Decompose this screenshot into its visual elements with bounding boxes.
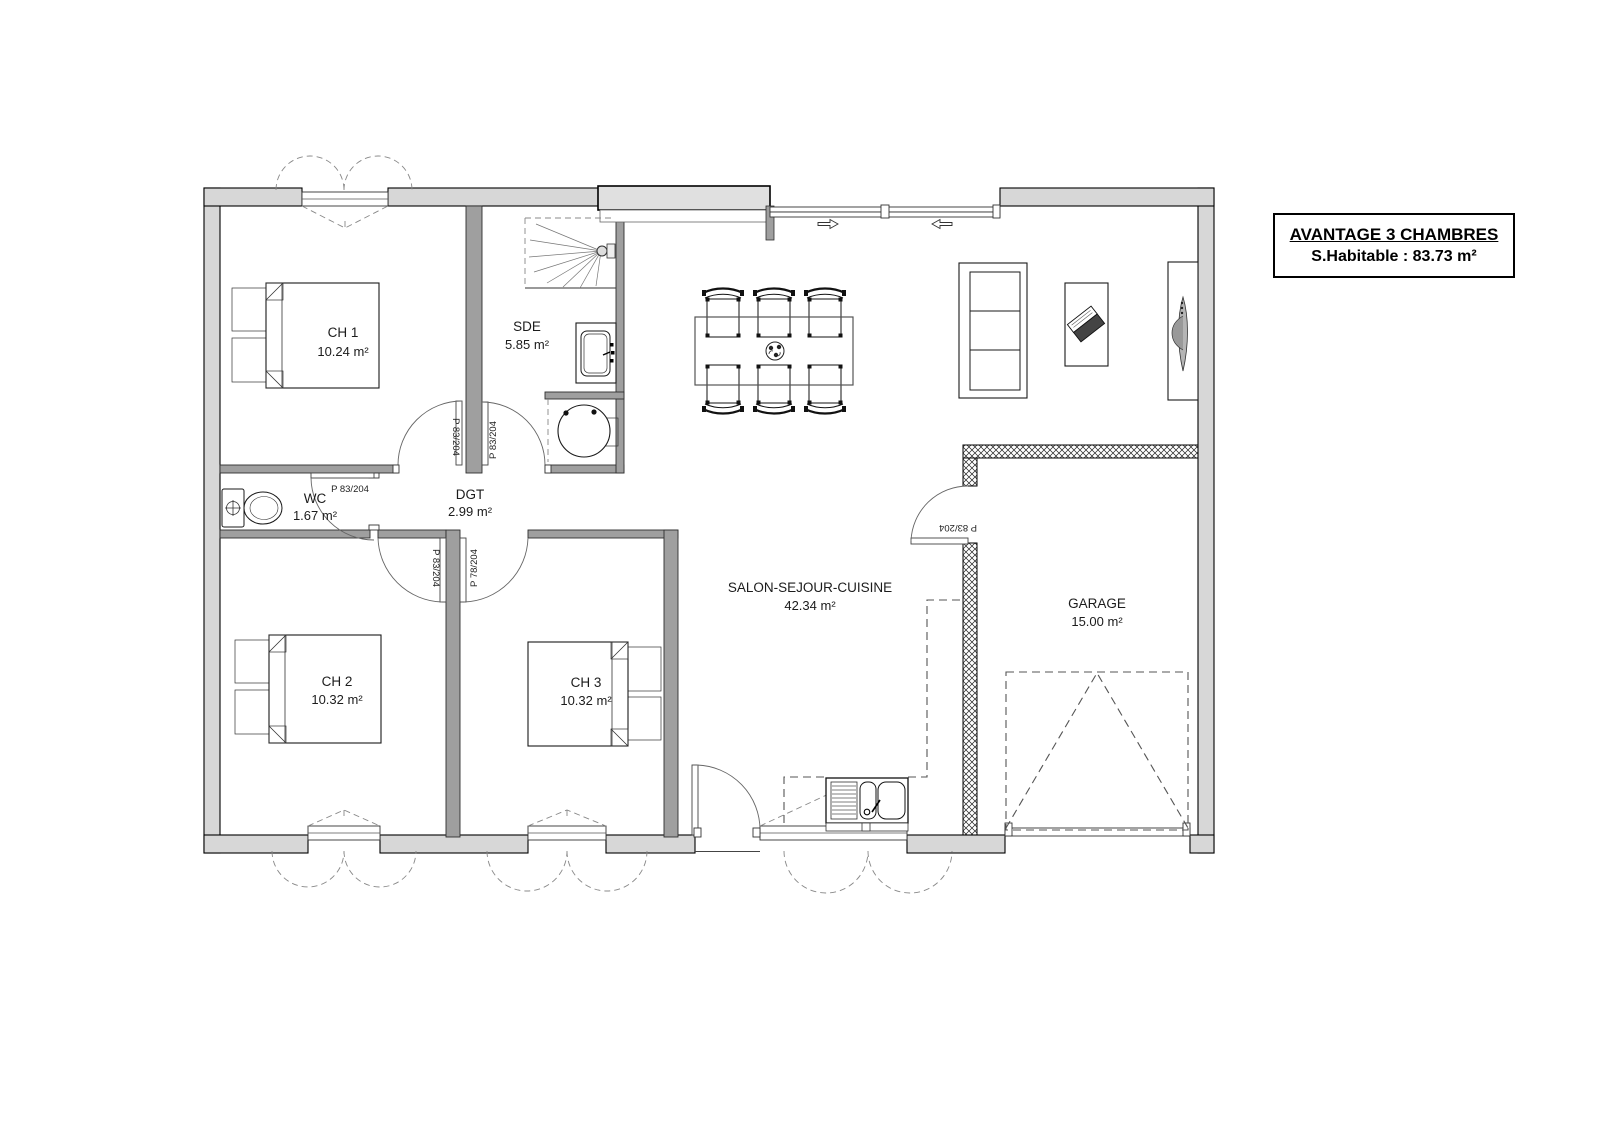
door-label-garage: P 83/204 <box>939 522 977 533</box>
garage-door <box>1005 672 1190 836</box>
chair-icon <box>804 365 846 414</box>
svg-text:15.00 m²: 15.00 m² <box>1071 614 1123 629</box>
sliding-bay-window <box>770 205 1000 229</box>
entrance-door <box>692 765 760 837</box>
room-label-dgt: DGT 2.99 m² <box>448 487 493 519</box>
plan-subtitle: S.Habitable : 83.73 m² <box>1311 248 1476 266</box>
sofa-icon <box>959 263 1027 398</box>
door-label-sde: P 83/204 <box>488 421 499 459</box>
garage-service-door <box>911 486 968 544</box>
door-label-ch2: P 83/204 <box>430 549 441 587</box>
door-label-wc: P 83/204 <box>331 484 369 495</box>
chair-icon <box>804 289 846 338</box>
door-label-ch1: P 83/204 <box>450 418 461 456</box>
svg-text:10.32 m²: 10.32 m² <box>311 692 363 707</box>
coffee-table-icon <box>1065 283 1108 366</box>
toilet-icon <box>222 489 282 527</box>
plan-title: AVANTAGE 3 CHAMBRES <box>1290 225 1499 245</box>
room-label-wc: WC 1.67 m² <box>293 491 338 523</box>
svg-text:CH 3: CH 3 <box>571 675 602 690</box>
svg-text:1.67 m²: 1.67 m² <box>293 508 338 523</box>
svg-text:10.24 m²: 10.24 m² <box>317 344 369 359</box>
dining-table-icon <box>695 289 853 414</box>
svg-text:WC: WC <box>304 491 327 506</box>
tv-unit-icon <box>1168 262 1198 400</box>
room-label-salon: SALON-SEJOUR-CUISINE 42.34 m² <box>728 580 892 613</box>
svg-text:2.99 m²: 2.99 m² <box>448 504 493 519</box>
svg-text:SDE: SDE <box>513 319 541 334</box>
room-label-garage: GARAGE 15.00 m² <box>1068 596 1126 629</box>
centerpiece-icon <box>766 342 784 360</box>
chair-icon <box>702 365 744 414</box>
svg-text:5.85 m²: 5.85 m² <box>505 337 550 352</box>
svg-text:DGT: DGT <box>456 487 485 502</box>
slide-arrow-left-icon <box>932 220 952 229</box>
room-label-sde: SDE 5.85 m² <box>505 319 550 352</box>
floor-plan: CH 1 10.24 m² SDE 5.85 m² WC 1.67 m² DGT… <box>0 0 1600 1132</box>
floor-plan-canvas: CH 1 10.24 m² SDE 5.85 m² WC 1.67 m² DGT… <box>0 0 1600 1132</box>
svg-text:CH 2: CH 2 <box>322 674 353 689</box>
kitchen-sink-icon <box>826 778 908 831</box>
garage-walls <box>963 445 1198 835</box>
svg-text:CH 1: CH 1 <box>328 325 359 340</box>
door-labels: P 83/204 P 83/204 P 83/204 P 83/204 P 78… <box>331 418 977 587</box>
shower-icon <box>525 218 616 288</box>
title-block: AVANTAGE 3 CHAMBRES S.Habitable : 83.73 … <box>1273 213 1515 278</box>
svg-text:42.34 m²: 42.34 m² <box>784 598 836 613</box>
washbasin-icon <box>576 323 616 383</box>
door-label-ch3: P 78/204 <box>469 549 480 587</box>
water-heater-icon <box>548 399 618 462</box>
chair-icon <box>753 365 795 414</box>
bed-ch2-icon <box>235 635 381 743</box>
chair-icon <box>702 289 744 338</box>
svg-text:10.32 m²: 10.32 m² <box>560 693 612 708</box>
svg-text:SALON-SEJOUR-CUISINE: SALON-SEJOUR-CUISINE <box>728 580 892 595</box>
chair-icon <box>753 289 795 338</box>
slide-arrow-right-icon <box>818 220 838 229</box>
svg-text:GARAGE: GARAGE <box>1068 596 1126 611</box>
